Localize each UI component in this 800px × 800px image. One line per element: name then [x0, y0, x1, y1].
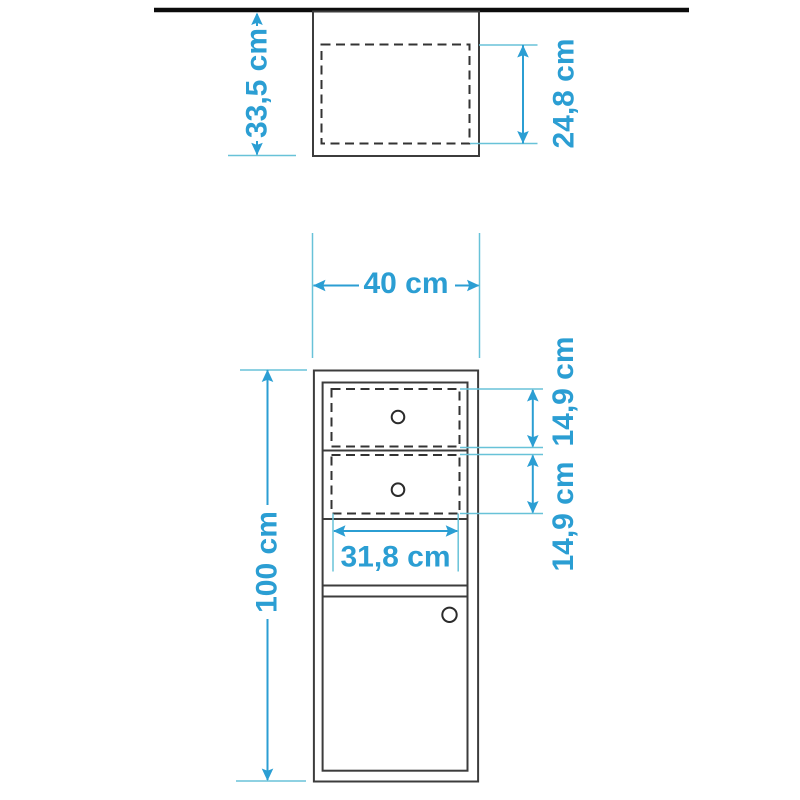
svg-text:33,5 cm: 33,5 cm [241, 28, 274, 138]
svg-text:14,9 cm: 14,9 cm [547, 461, 580, 571]
svg-text:40 cm: 40 cm [363, 267, 448, 300]
svg-text:24,8 cm: 24,8 cm [548, 38, 581, 148]
svg-text:31,8 cm: 31,8 cm [340, 541, 450, 574]
svg-text:14,9 cm: 14,9 cm [547, 336, 580, 446]
svg-text:100 cm: 100 cm [251, 511, 284, 613]
